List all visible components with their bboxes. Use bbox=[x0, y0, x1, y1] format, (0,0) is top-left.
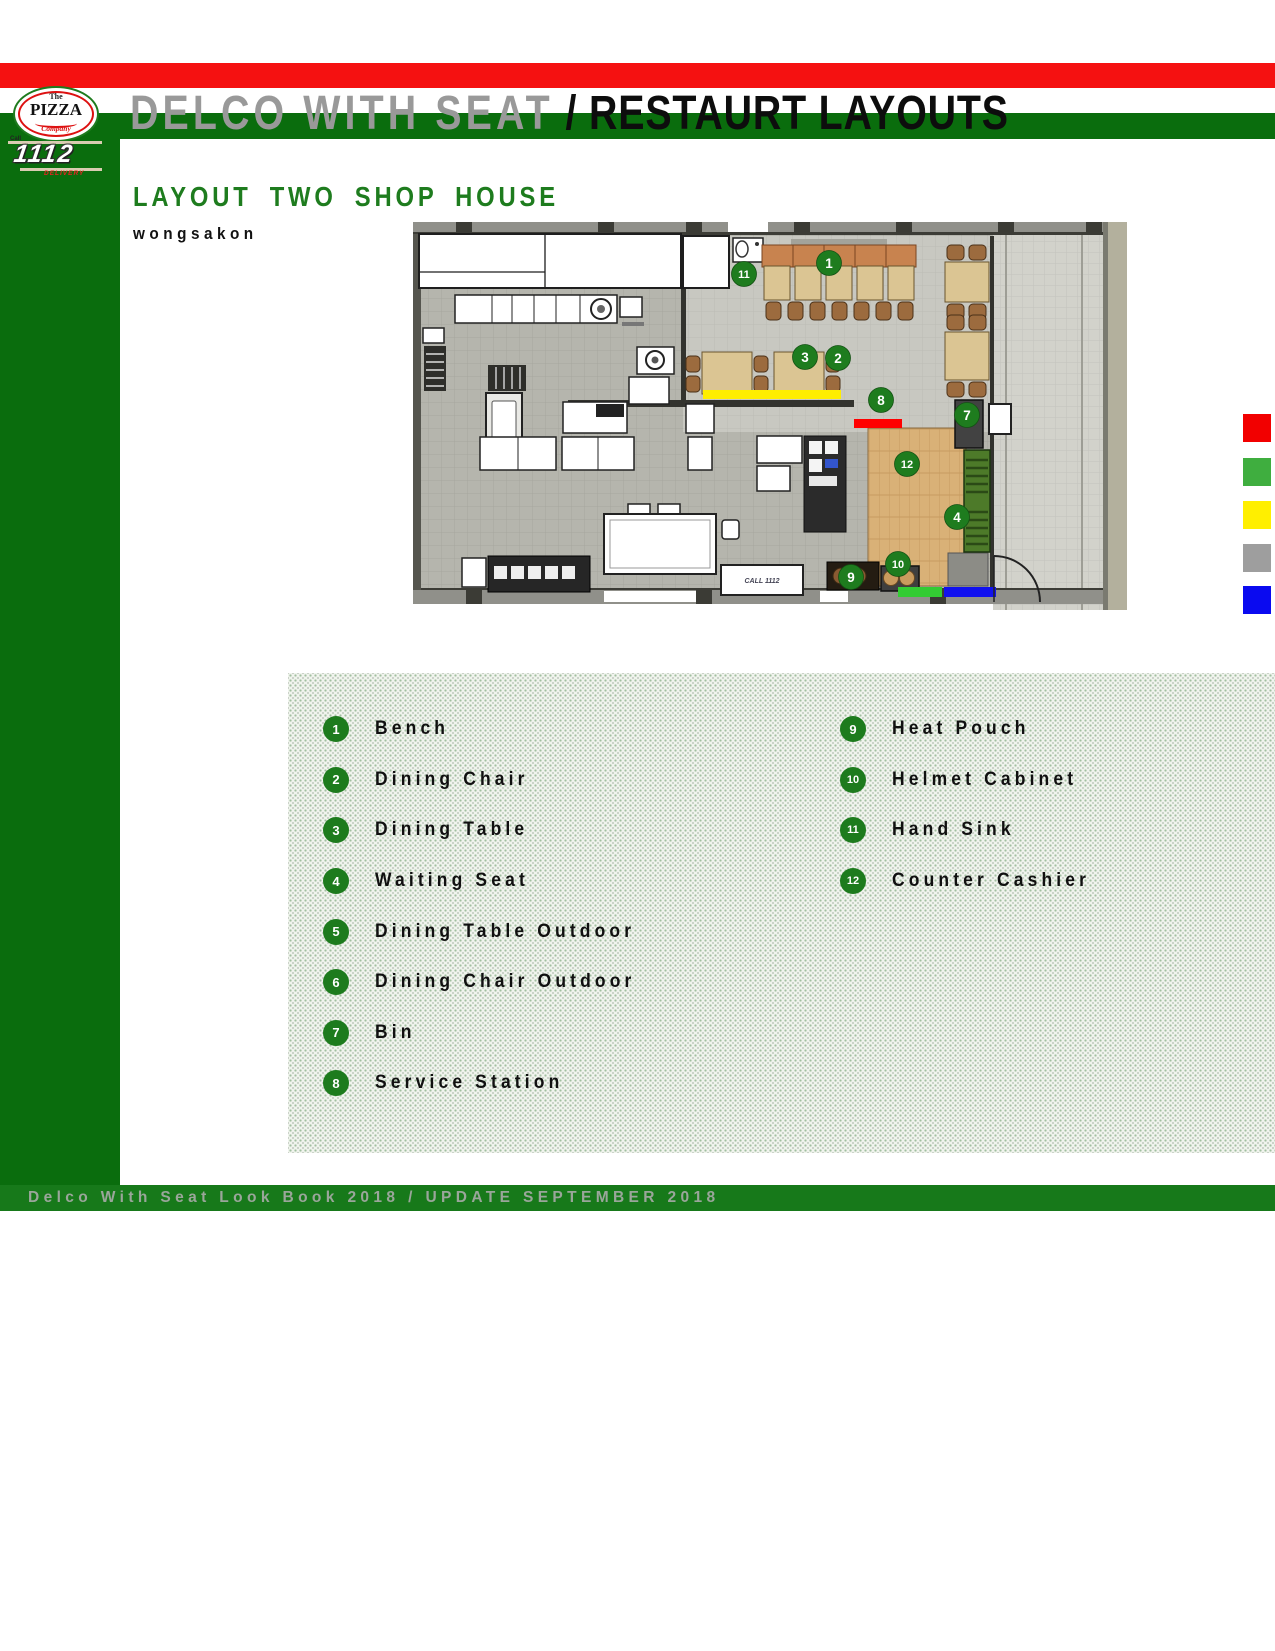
legend-item: 11Hand Sink bbox=[840, 805, 1107, 856]
accent-strip-blue bbox=[944, 587, 996, 597]
plan-marker-1: 1 bbox=[817, 251, 842, 276]
small-label bbox=[622, 322, 644, 326]
station-box-a bbox=[686, 404, 714, 433]
legend-item: 1Bench bbox=[323, 704, 658, 755]
plan-marker-12: 12 bbox=[895, 452, 920, 477]
legend-item-label: Counter Cashier bbox=[892, 870, 1090, 892]
plan-marker-10: 10 bbox=[886, 552, 911, 577]
legend-column-right: 9Heat Pouch10Helmet Cabinet11Hand Sink12… bbox=[840, 704, 1107, 906]
svg-text:3: 3 bbox=[801, 350, 809, 365]
accent-strip-green bbox=[898, 587, 942, 597]
oven-fan-hub bbox=[652, 357, 659, 364]
boundary-band bbox=[1108, 222, 1127, 610]
floor-plan-svg: CALL 1112 1234789101112 bbox=[413, 222, 1127, 610]
legend-item-number: 10 bbox=[840, 767, 866, 793]
swatch-red bbox=[1243, 414, 1271, 442]
swatch-yellow bbox=[1243, 501, 1271, 529]
legend-item-number: 8 bbox=[323, 1070, 349, 1096]
legend-item-label: Service Station bbox=[375, 1072, 563, 1094]
legend-item: 4Waiting Seat bbox=[323, 856, 658, 907]
door-niche bbox=[989, 404, 1011, 434]
legend-item: 10Helmet Cabinet bbox=[840, 755, 1107, 806]
svg-text:7: 7 bbox=[963, 408, 971, 423]
plan-marker-9: 9 bbox=[839, 565, 864, 590]
bottom-wall-gap1 bbox=[604, 591, 700, 602]
legend-item-label: Bin bbox=[375, 1022, 416, 1044]
page-title-secondary: / RESTAURT LAYOUTS bbox=[554, 87, 1009, 140]
plan-marker-7: 7 bbox=[955, 403, 980, 428]
svg-text:10: 10 bbox=[892, 559, 904, 571]
legend-item-label: Dining Table Outdoor bbox=[375, 921, 635, 943]
svg-text:12: 12 bbox=[901, 459, 913, 471]
legend-item: 12Counter Cashier bbox=[840, 856, 1107, 907]
stool bbox=[722, 520, 739, 539]
svg-text:9: 9 bbox=[847, 570, 855, 585]
legend-column-left: 1Bench2Dining Chair3Dining Table4Waiting… bbox=[323, 704, 658, 1109]
dining-chairs-top bbox=[766, 302, 913, 320]
legend-item-number: 3 bbox=[323, 817, 349, 843]
legend-item-number: 2 bbox=[323, 767, 349, 793]
legend-panel: 1Bench2Dining Chair3Dining Table4Waiting… bbox=[288, 673, 1275, 1153]
lookbook-page: DELCO WITH SEAT / RESTAURT LAYOUTS The P… bbox=[0, 0, 1275, 1651]
bottom-wall-gap2 bbox=[820, 591, 848, 602]
legend-item-label: Dining Chair Outdoor bbox=[375, 971, 636, 993]
logo-1112: Call 1112 DELIVERY bbox=[8, 140, 108, 180]
legend-item-number: 7 bbox=[323, 1020, 349, 1046]
swatch-blue bbox=[1243, 586, 1271, 614]
legend-item-label: Waiting Seat bbox=[375, 870, 529, 892]
legend-item-number: 9 bbox=[840, 716, 866, 742]
floor-plan: CALL 1112 1234789101112 bbox=[413, 222, 1127, 610]
plan-marker-2: 2 bbox=[826, 346, 851, 371]
small-unit bbox=[620, 297, 642, 317]
sink-bowl bbox=[736, 241, 748, 257]
bench-backrest bbox=[791, 239, 887, 245]
legend-item: 8Service Station bbox=[323, 1058, 658, 1109]
logo-pizza-text: PIZZA bbox=[15, 100, 97, 120]
mixer-center bbox=[597, 305, 605, 313]
top-wall-gap bbox=[728, 222, 768, 232]
accent-strip-yellow bbox=[703, 390, 841, 399]
mid-box-a bbox=[757, 436, 802, 463]
plan-marker-11: 11 bbox=[732, 262, 757, 287]
svg-text:8: 8 bbox=[877, 393, 885, 408]
svg-text:4: 4 bbox=[953, 510, 961, 525]
legend-item-number: 5 bbox=[323, 919, 349, 945]
wall-unit-a bbox=[423, 328, 444, 343]
oven-stand bbox=[629, 377, 669, 404]
section-title: LAYOUT TWO SHOP HOUSE bbox=[133, 181, 559, 213]
logo-1112-number: 1112 bbox=[12, 142, 75, 167]
legend-item-label: Dining Table bbox=[375, 819, 528, 841]
station-box-b bbox=[688, 437, 712, 470]
accent-strip-red bbox=[854, 419, 902, 428]
corner-unit bbox=[462, 558, 486, 587]
swatch-green bbox=[1243, 458, 1271, 486]
cabinet bbox=[683, 236, 729, 288]
footer-bar: Delco With Seat Look Book 2018 / UPDATE … bbox=[0, 1185, 1275, 1211]
sidebar bbox=[0, 113, 120, 1185]
swatch-gray bbox=[1243, 544, 1271, 572]
legend-item: 9Heat Pouch bbox=[840, 704, 1107, 755]
legend-item-label: Bench bbox=[375, 718, 449, 740]
page-title-primary: DELCO WITH SEAT bbox=[130, 87, 554, 140]
legend-item: 7Bin bbox=[323, 1008, 658, 1059]
office-table bbox=[604, 514, 716, 574]
legend-item-number: 11 bbox=[840, 817, 866, 843]
kitchen-partition bbox=[681, 288, 686, 402]
plan-marker-4: 4 bbox=[945, 505, 970, 530]
sink-faucet bbox=[755, 242, 759, 246]
pizza-company-logo: The PIZZA Company bbox=[13, 86, 99, 142]
legend-item: 5Dining Table Outdoor bbox=[323, 906, 658, 957]
legend-item-label: Heat Pouch bbox=[892, 718, 1030, 740]
stove-top bbox=[596, 404, 624, 417]
legend-item: 6Dining Chair Outdoor bbox=[323, 957, 658, 1008]
logo-1112-delivery-text: DELIVERY bbox=[44, 170, 84, 177]
call-station-label: CALL 1112 bbox=[744, 578, 779, 585]
entry-mat bbox=[948, 553, 988, 586]
plan-marker-8: 8 bbox=[869, 388, 894, 413]
page-title: DELCO WITH SEAT / RESTAURT LAYOUTS bbox=[130, 90, 1009, 138]
plot-edge-line bbox=[1103, 222, 1108, 610]
legend-item: 3Dining Table bbox=[323, 805, 658, 856]
legend-item-label: Hand Sink bbox=[892, 819, 1015, 841]
legend-item-number: 1 bbox=[323, 716, 349, 742]
svg-text:11: 11 bbox=[738, 269, 750, 281]
wall-shelf bbox=[424, 346, 446, 391]
legend-item-label: Dining Chair bbox=[375, 769, 529, 791]
mid-box-b bbox=[757, 466, 790, 491]
header-red-stripe bbox=[0, 63, 1275, 88]
legend-item-label: Helmet Cabinet bbox=[892, 769, 1077, 791]
footer-text: Delco With Seat Look Book 2018 / UPDATE … bbox=[28, 1189, 720, 1207]
fryer-bank-cells bbox=[494, 566, 575, 579]
legend-item: 2Dining Chair bbox=[323, 755, 658, 806]
logo-company-text: Company bbox=[15, 124, 97, 133]
svg-text:2: 2 bbox=[834, 351, 842, 366]
hood-room bbox=[419, 234, 681, 288]
svg-text:1: 1 bbox=[825, 256, 833, 271]
legend-item-number: 4 bbox=[323, 868, 349, 894]
plan-marker-3: 3 bbox=[793, 345, 818, 370]
author-name: wongsakon bbox=[133, 224, 258, 244]
legend-item-number: 12 bbox=[840, 868, 866, 894]
legend-item-number: 6 bbox=[323, 969, 349, 995]
